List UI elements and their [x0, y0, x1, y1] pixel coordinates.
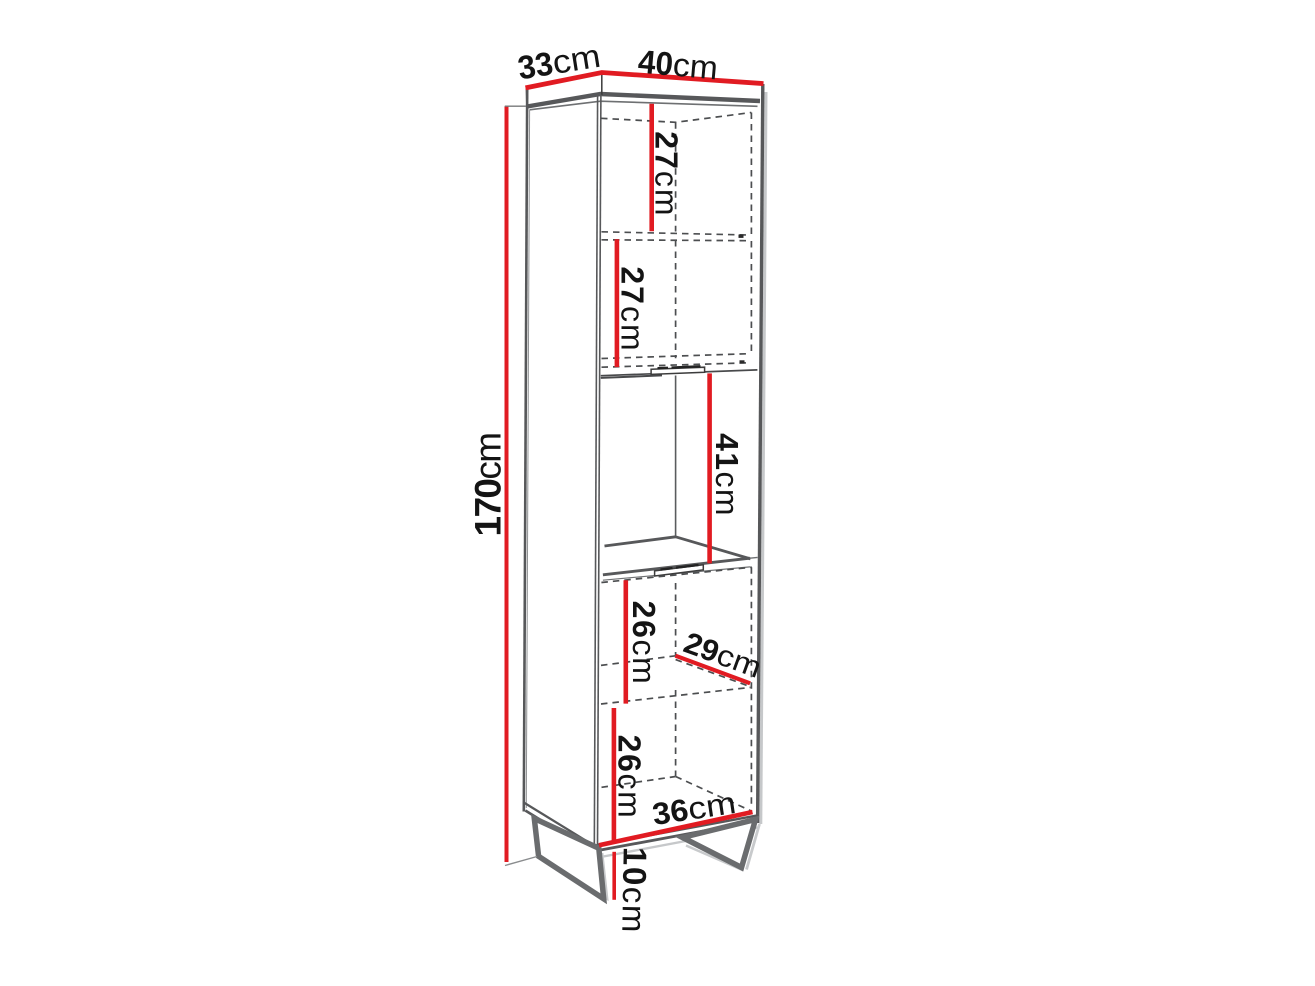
svg-text:26cm: 26cm: [626, 601, 662, 686]
svg-text:10cm: 10cm: [616, 847, 655, 935]
svg-text:27cm: 27cm: [648, 131, 684, 217]
svg-text:41cm: 41cm: [709, 433, 745, 517]
svg-text:26cm: 26cm: [612, 735, 648, 820]
svg-text:170cm: 170cm: [467, 433, 508, 536]
svg-text:27cm: 27cm: [615, 266, 651, 352]
svg-text:40cm: 40cm: [637, 42, 720, 86]
